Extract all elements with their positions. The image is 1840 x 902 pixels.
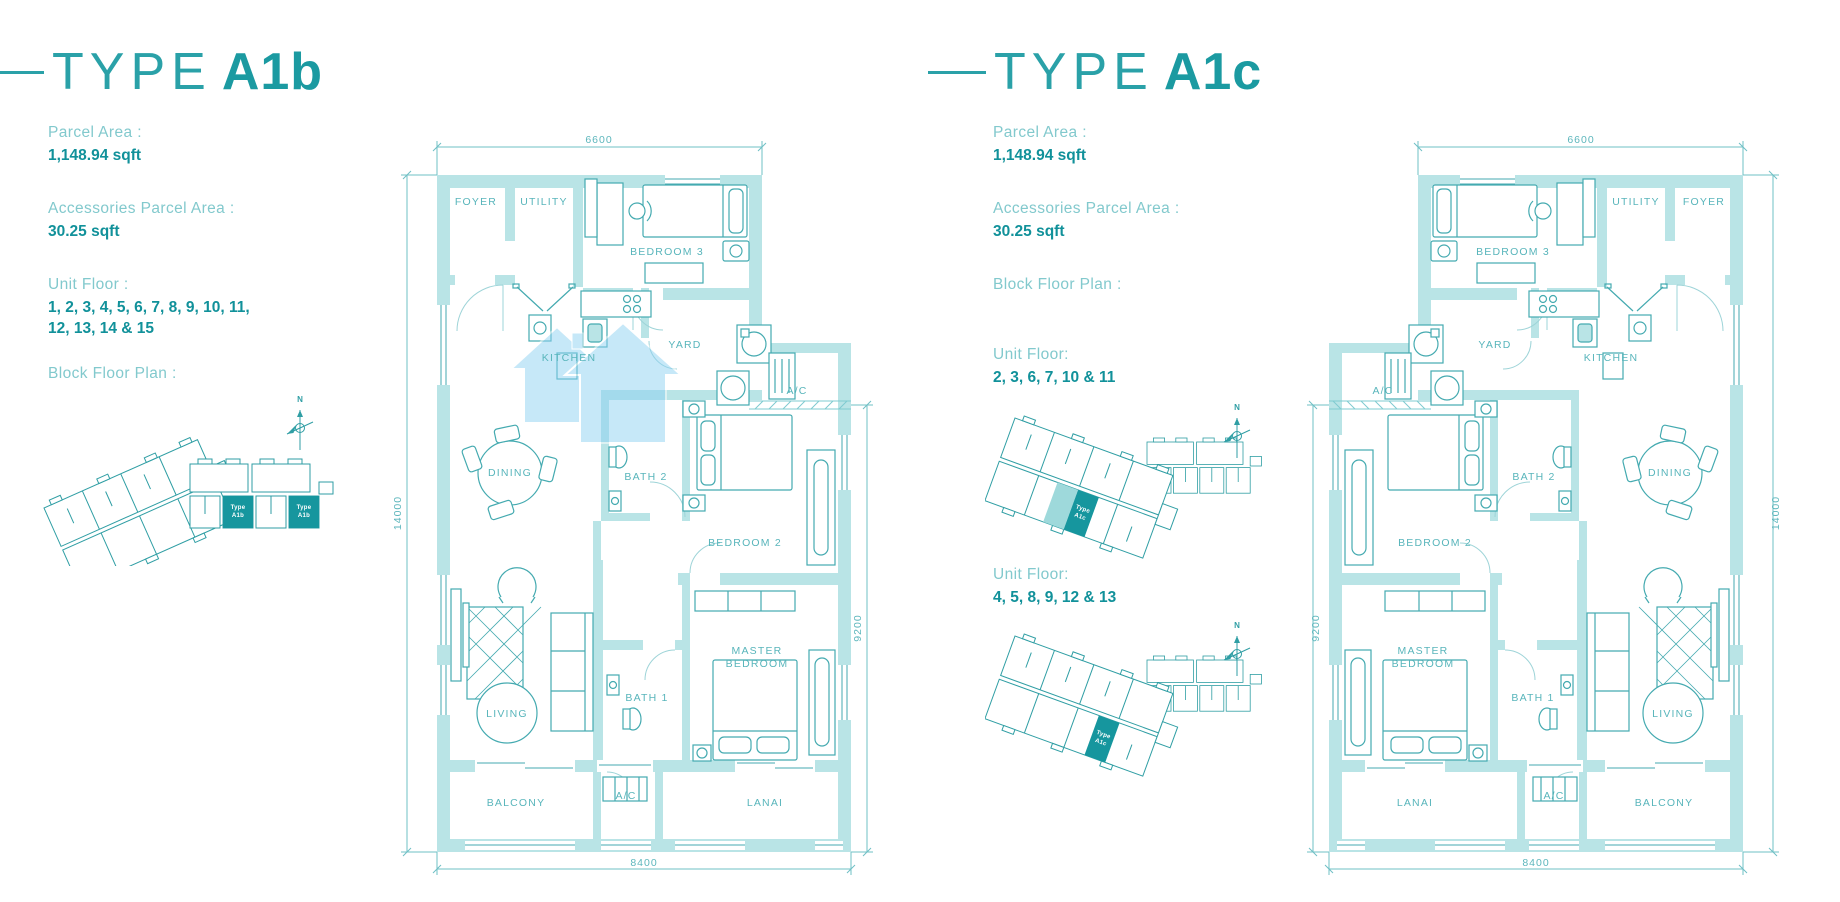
room-label-lanai: LANAI (747, 797, 783, 809)
dim-top: 6600 (585, 134, 612, 146)
room-label-ac-top: A/C (786, 385, 807, 397)
site-map-a1c-2: Type A1c N (985, 616, 1265, 784)
compass-north-label: N (297, 395, 303, 404)
unit-floor-group-1: Unit Floor: 2, 3, 6, 7, 10 & 11 (993, 346, 1115, 388)
building-cluster: Type A1c (985, 413, 1190, 566)
room-label-bath2: BATH 2 (1512, 471, 1555, 483)
unit-floor-value: 4, 5, 8, 9, 12 & 13 (993, 587, 1116, 608)
room-label-ac-bottom: A/C (615, 790, 636, 802)
unit-floor-line1: 1, 2, 3, 4, 5, 6, 7, 8, 9, 10, 11, (48, 297, 348, 318)
unit-tag-line1: Type (297, 505, 312, 511)
title-prefix: TYPE (994, 42, 1154, 102)
building-cluster: Type A1c (985, 631, 1190, 784)
room-label-kitchen: KITCHEN (542, 352, 597, 364)
room-label-bedroom3: BEDROOM 3 (1476, 246, 1550, 258)
unit-floor-label: Unit Floor : (48, 276, 348, 294)
room-label-dining: DINING (488, 467, 532, 479)
highlight-unit-a1b-2: Type A1b (289, 496, 319, 528)
parcel-area-value: 1,148.94 sqft (48, 145, 348, 166)
dim-left: 14000 (392, 496, 404, 530)
compass-north-label: N (1234, 621, 1240, 630)
dim-right: 9200 (852, 614, 864, 641)
site-map-a1c-1: Type A1c N (985, 398, 1265, 566)
room-label-utility: UTILITY (1612, 196, 1660, 208)
room-label-ac-bottom: A/C (1543, 790, 1564, 802)
accessories-value: 30.25 sqft (48, 221, 348, 242)
dim-left: 9200 (1310, 614, 1322, 641)
room-label-foyer: FOYER (455, 196, 497, 208)
room-label-ac-top: A/C (1372, 385, 1393, 397)
accessories-label: Accessories Parcel Area : (993, 200, 1293, 218)
dimension-labels: 6600 9200 14000 8400 (1310, 134, 1782, 869)
floorplan-brochure-page: { "colors": { "accent_teal": "#2aa1a8", … (0, 0, 1840, 902)
floor-plan-a1c: FOYER UTILITY BEDROOM 3 KITCHEN YARD A/C… (1300, 105, 1835, 890)
room-label-master-2: BEDROOM (1392, 658, 1455, 670)
accessories-label: Accessories Parcel Area : (48, 200, 348, 218)
room-label-balcony: BALCONY (487, 797, 546, 809)
room-label-balcony: BALCONY (1635, 797, 1694, 809)
room-label-bedroom2: BEDROOM 2 (1398, 537, 1472, 549)
unit-tag-line2: A1b (298, 513, 310, 519)
room-label-lanai: LANAI (1397, 797, 1433, 809)
parcel-area-label: Parcel Area : (993, 124, 1293, 142)
highlight-unit-a1b-1: Type A1b (223, 496, 253, 528)
room-label-bedroom2: BEDROOM 2 (708, 537, 782, 549)
title-prefix: TYPE (52, 42, 212, 102)
room-label-living: LIVING (486, 708, 528, 720)
room-label-bath2: BATH 2 (624, 471, 667, 483)
room-label-yard: YARD (1478, 339, 1511, 351)
unit-floor-value: 2, 3, 6, 7, 10 & 11 (993, 367, 1115, 388)
title-a1c: TYPE A1c (928, 42, 1262, 102)
title-type-code: A1c (1164, 42, 1262, 102)
room-label-bedroom3: BEDROOM 3 (630, 246, 704, 258)
unit-tag-line2: A1b (232, 513, 244, 519)
info-block-a1c: Parcel Area : 1,148.94 sqft Accessories … (993, 124, 1293, 297)
compass-north-label: N (1234, 403, 1240, 412)
title-type-code: A1b (222, 42, 323, 102)
parcel-area-value: 1,148.94 sqft (993, 145, 1293, 166)
dim-top: 6600 (1567, 134, 1594, 146)
dim-right: 14000 (1770, 496, 1782, 530)
title-dash (0, 71, 44, 74)
unit-floor-line2: 12, 13, 14 & 15 (48, 318, 348, 339)
block-floor-plan-label: Block Floor Plan : (993, 276, 1293, 294)
info-block-a1b: Parcel Area : 1,148.94 sqft Accessories … (48, 124, 348, 386)
block-floor-plan-label: Block Floor Plan : (48, 365, 348, 383)
floor-plan-a1b: FOYER UTILITY BEDROOM 3 KITCHEN YARD A/C… (345, 105, 880, 890)
room-label-master-2: BEDROOM (726, 658, 789, 670)
dim-bottom: 8400 (1522, 857, 1549, 869)
unit-floor-label: Unit Floor: (993, 566, 1116, 584)
room-label-kitchen: KITCHEN (1584, 352, 1639, 364)
dim-bottom: 8400 (630, 857, 657, 869)
room-label-yard: YARD (668, 339, 701, 351)
title-dash (928, 71, 986, 74)
compass-icon (287, 410, 313, 450)
site-map-a1b: Type A1b Type A1b N (38, 388, 338, 566)
title-a1b: TYPE A1b (0, 42, 323, 102)
room-label-utility: UTILITY (520, 196, 568, 208)
room-label-bath1: BATH 1 (625, 692, 668, 704)
room-label-foyer: FOYER (1683, 196, 1725, 208)
unit-floor-group-2: Unit Floor: 4, 5, 8, 9, 12 & 13 (993, 566, 1116, 608)
room-label-bath1: BATH 1 (1511, 692, 1554, 704)
room-label-master-1: MASTER (1398, 645, 1449, 657)
accessories-value: 30.25 sqft (993, 221, 1293, 242)
unit-floor-label: Unit Floor: (993, 346, 1115, 364)
room-label-living: LIVING (1652, 708, 1694, 720)
unit-tag-line1: Type (231, 505, 246, 511)
parcel-area-label: Parcel Area : (48, 124, 348, 142)
room-label-master-1: MASTER (732, 645, 783, 657)
room-label-dining: DINING (1648, 467, 1692, 479)
